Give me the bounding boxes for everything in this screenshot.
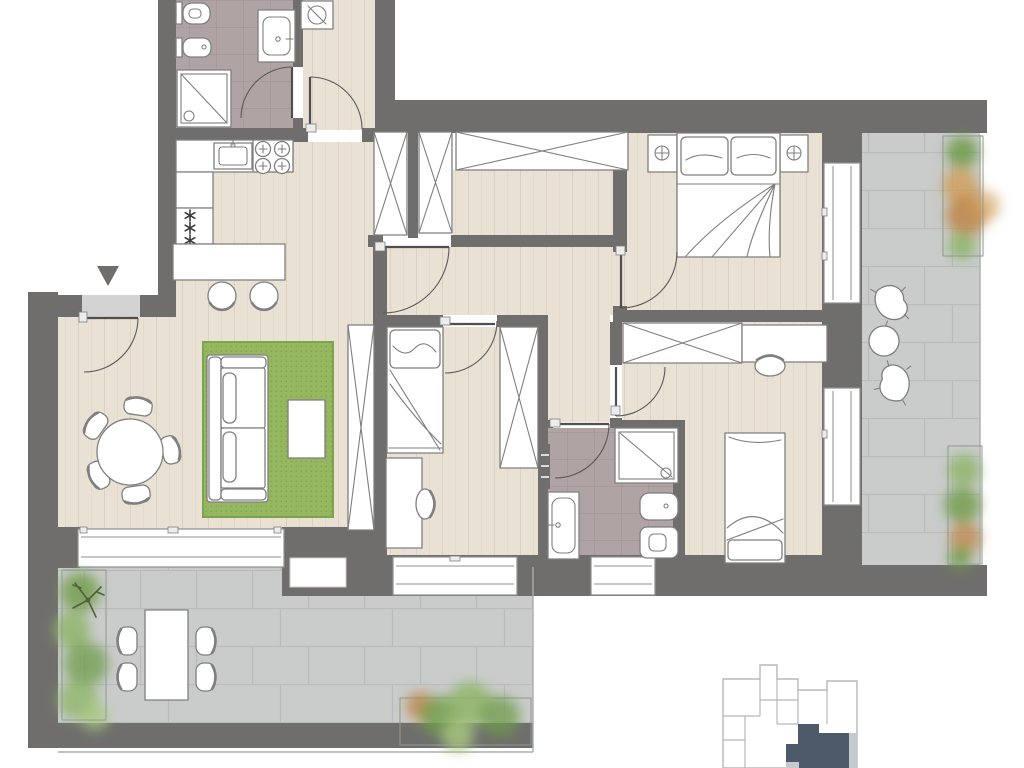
radiator bbox=[176, 208, 213, 246]
single-bed-2 bbox=[725, 433, 785, 563]
pillow-right bbox=[731, 137, 776, 175]
wardrobe-bedroom2 bbox=[623, 323, 742, 363]
wall-entry-right bbox=[140, 295, 176, 317]
keyplan-accent-bottom bbox=[786, 762, 799, 768]
wall-hall-south-b bbox=[497, 315, 545, 327]
sofa bbox=[207, 355, 268, 502]
bed1-pillow bbox=[390, 330, 440, 368]
kitchen-counter-left bbox=[176, 172, 213, 208]
wall-closet-pillar bbox=[408, 130, 418, 238]
wall-hall-north-b bbox=[451, 235, 627, 247]
wall-terrace-side-south bbox=[862, 565, 987, 596]
bidet bbox=[176, 38, 211, 57]
bar-stool-2 bbox=[250, 282, 278, 310]
bed2-footer bbox=[728, 540, 782, 560]
window-master-handle bbox=[822, 208, 827, 216]
window-bedroom2-handle bbox=[822, 430, 827, 438]
shower bbox=[177, 70, 231, 127]
floor-hallway bbox=[380, 247, 627, 315]
toilet2-bowl bbox=[640, 527, 678, 558]
entrance-marker-icon bbox=[97, 266, 119, 286]
outdoor-table bbox=[145, 610, 188, 700]
wall-bath1-south-b bbox=[362, 128, 375, 142]
window-bedroom1-glass bbox=[393, 557, 517, 595]
wall-entry-left bbox=[58, 295, 82, 317]
toilet-bowl bbox=[183, 3, 210, 24]
wall-master-bedroom2 bbox=[613, 310, 822, 322]
bidet2-bowl bbox=[640, 493, 678, 520]
towel-radiator bbox=[540, 444, 550, 489]
wall-bedroom2-west-a bbox=[610, 322, 622, 365]
nightstand-left bbox=[648, 135, 677, 172]
round-dining-table bbox=[97, 419, 163, 485]
wall-west-exterior bbox=[28, 292, 58, 748]
bar-stool-1 bbox=[208, 282, 236, 310]
closet-2 bbox=[419, 132, 452, 233]
sofa-pillow-2 bbox=[223, 432, 236, 482]
wall-bedroom1-west bbox=[373, 247, 387, 556]
closet-1 bbox=[374, 132, 407, 235]
wall-bath2-north-b bbox=[611, 420, 685, 428]
bathroom2-door-hinge bbox=[550, 419, 560, 427]
toilet-tank bbox=[176, 2, 182, 24]
wall-living-window-jamb bbox=[58, 527, 80, 568]
wardrobe-bedroom1 bbox=[500, 327, 538, 468]
floor-corridor-south bbox=[548, 315, 610, 422]
window-master-handle2 bbox=[822, 252, 827, 260]
entrance-door-hinge bbox=[79, 312, 87, 322]
floor-plan-canvas bbox=[0, 0, 1024, 768]
window-living bbox=[78, 527, 284, 567]
sofa-arm-top bbox=[221, 357, 266, 368]
window-bathroom2 bbox=[591, 557, 655, 595]
window-living-tick-left bbox=[80, 527, 87, 533]
toilet-2 bbox=[640, 527, 678, 558]
wall-north bbox=[395, 100, 987, 133]
outdoor-chair-1 bbox=[118, 627, 138, 655]
single-bed-1 bbox=[387, 327, 443, 453]
double-bed bbox=[677, 133, 780, 257]
wall-niche bbox=[290, 558, 346, 587]
side-table bbox=[869, 326, 899, 356]
shower-2 bbox=[615, 428, 678, 483]
window-bedroom1 bbox=[393, 556, 517, 595]
keyplan bbox=[723, 665, 857, 768]
bidet-mount bbox=[176, 38, 182, 57]
wide-wardrobe bbox=[456, 132, 628, 170]
outdoor-chair-4 bbox=[196, 663, 216, 691]
outdoor-chair-2 bbox=[118, 663, 138, 691]
window-bedroom2 bbox=[822, 388, 860, 505]
window-bathroom2-glass bbox=[591, 557, 655, 595]
bedroom2-door-hinge bbox=[611, 406, 620, 415]
tall-wardrobe-living bbox=[348, 325, 374, 530]
sofa-pillow-1 bbox=[223, 373, 236, 423]
sofa-arm-bottom bbox=[221, 489, 266, 500]
window-master-glass bbox=[824, 163, 860, 303]
hob-4-burners bbox=[253, 140, 293, 174]
window-living-glass bbox=[78, 529, 284, 567]
outdoor-chair-3 bbox=[196, 627, 216, 655]
window-living-tick-mid bbox=[168, 527, 178, 533]
wall-hall-south-a bbox=[380, 315, 443, 327]
planter-top-foliage bbox=[942, 136, 1000, 260]
desk-chair-2 bbox=[755, 356, 785, 377]
pillow-left bbox=[681, 137, 728, 175]
washing-machine bbox=[301, 1, 333, 29]
laundry-door-hinge bbox=[306, 124, 316, 132]
floor-plan-page bbox=[0, 0, 1024, 768]
window-bedroom2-glass bbox=[824, 388, 860, 505]
peninsula-counter bbox=[173, 244, 285, 280]
floor-corridor-upper bbox=[453, 170, 627, 235]
nightstand-right bbox=[780, 135, 808, 172]
window-bedroom1-tick bbox=[450, 556, 460, 561]
kitchen-sink bbox=[214, 140, 252, 169]
wall-laundry-east bbox=[375, 0, 395, 133]
window-master bbox=[822, 163, 860, 303]
doormat bbox=[82, 295, 140, 317]
desk-2 bbox=[742, 325, 827, 362]
window-living-tick-right bbox=[274, 527, 281, 533]
coffee-table bbox=[288, 400, 325, 458]
desk-chair-1 bbox=[416, 489, 435, 519]
bidet-bowl bbox=[183, 38, 211, 57]
bidet-2 bbox=[640, 493, 678, 520]
master-door-hinge bbox=[616, 246, 625, 255]
wall-hung-toilet bbox=[176, 2, 210, 24]
bedroom1-door-hinge bbox=[440, 317, 450, 325]
vanity-sink-2 bbox=[548, 492, 579, 559]
hall-door-hinge bbox=[375, 242, 385, 251]
keyplan-accent-right bbox=[849, 733, 857, 768]
vanity-sink bbox=[258, 10, 295, 62]
sofa-backrest bbox=[209, 357, 221, 500]
